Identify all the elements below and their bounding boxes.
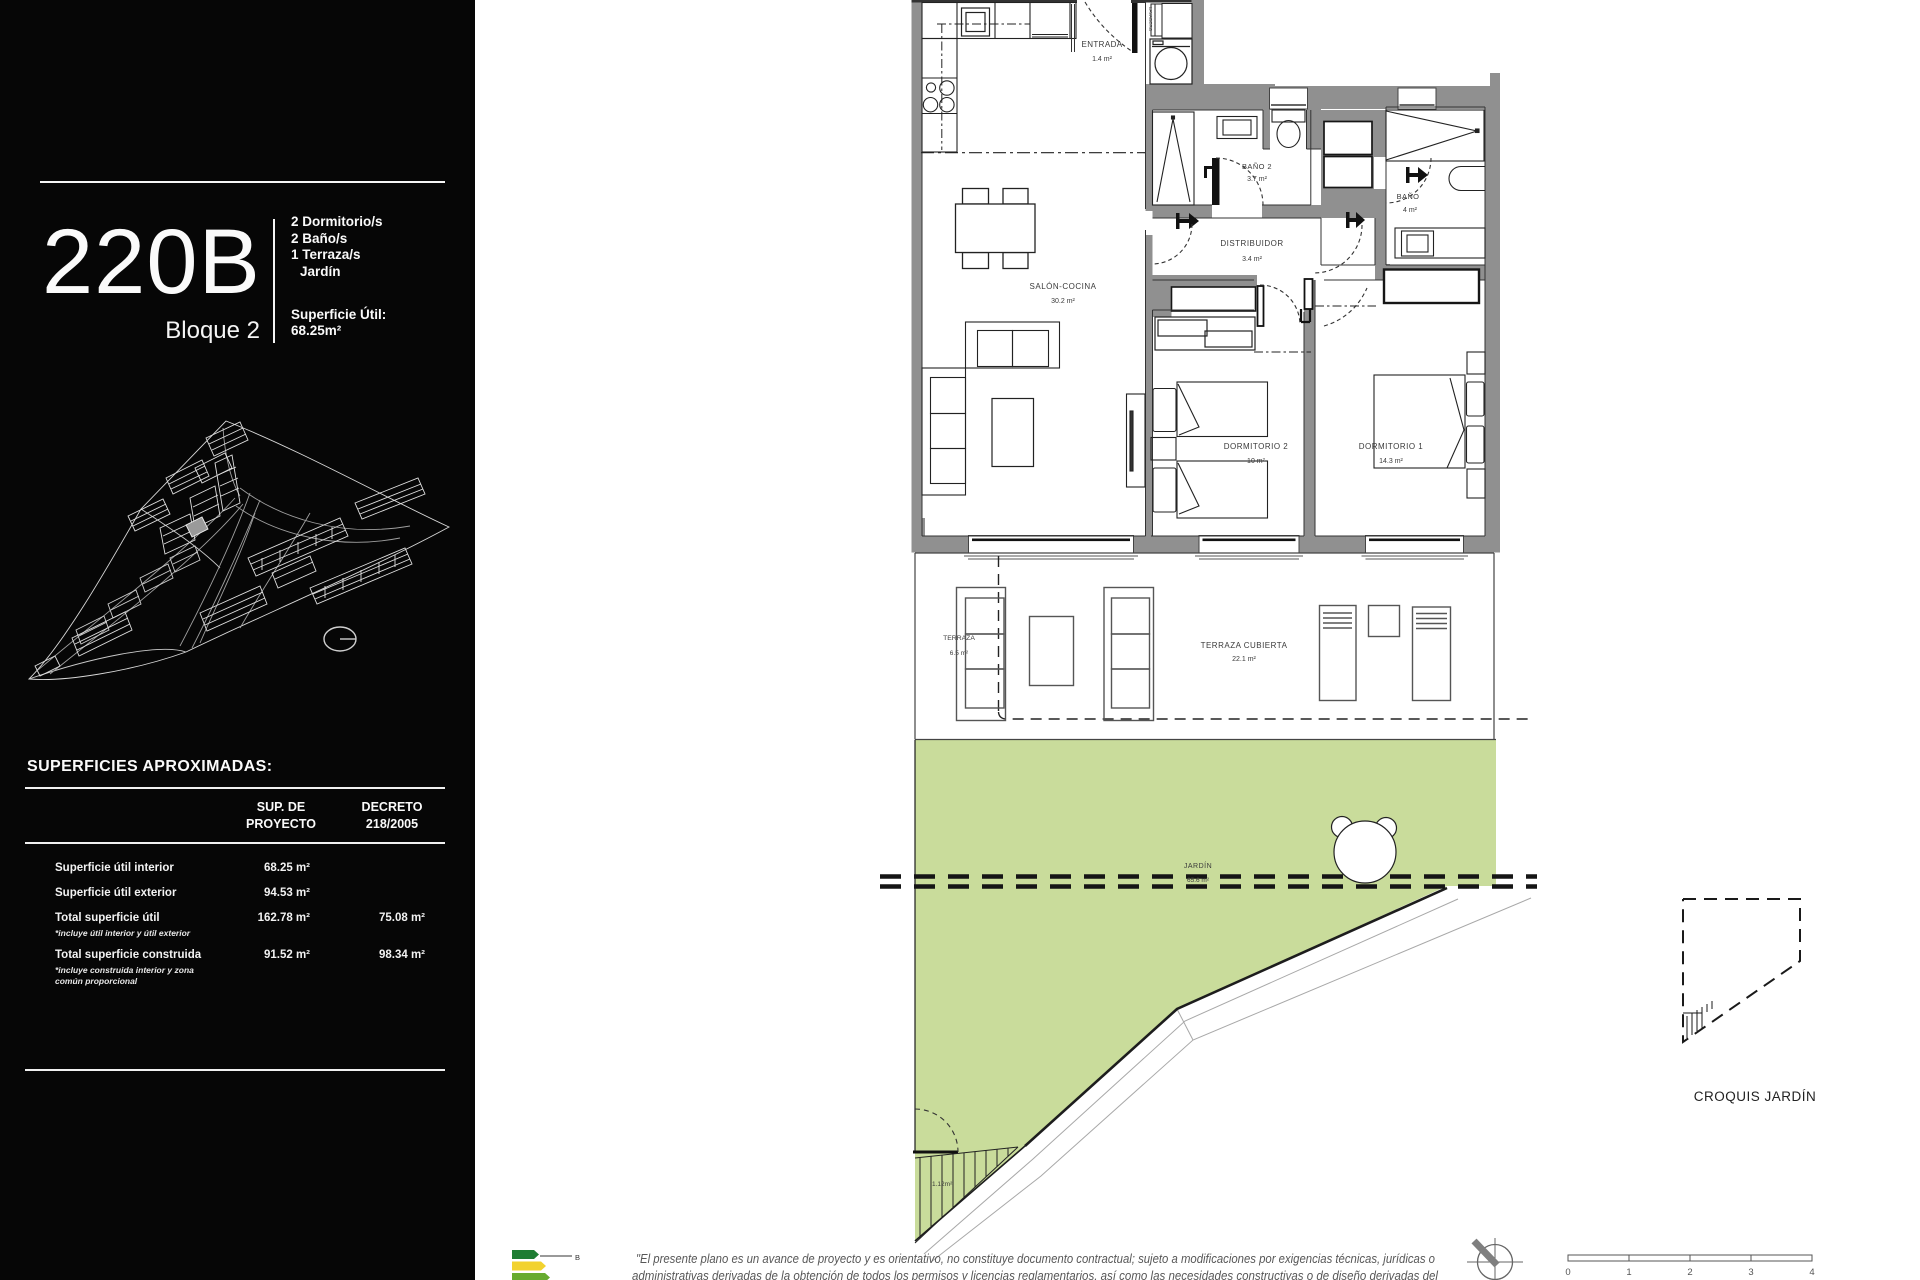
svg-text:LAVADERO: LAVADERO: [1148, 7, 1153, 32]
svg-text:14.3 m²: 14.3 m²: [1379, 458, 1403, 465]
svg-text:65.6 m²: 65.6 m²: [1187, 877, 1210, 884]
svg-text:1.4 m²: 1.4 m²: [1092, 56, 1113, 63]
svg-text:3.4 m²: 3.4 m²: [1242, 256, 1263, 263]
svg-text:administrativas derivadas de l: administrativas derivadas de la obtenció…: [632, 1269, 1439, 1280]
svg-text:BAÑO 2: BAÑO 2: [1242, 162, 1272, 171]
svg-text:B: B: [575, 1253, 580, 1262]
svg-text:ENTRADA: ENTRADA: [1081, 40, 1122, 49]
svg-text:CROQUIS JARDÍN: CROQUIS JARDÍN: [1694, 1089, 1817, 1104]
svg-text:DORMITORIO 2: DORMITORIO 2: [1224, 442, 1289, 451]
svg-text:0: 0: [1565, 1267, 1570, 1278]
svg-text:DORMITORIO 1: DORMITORIO 1: [1359, 442, 1424, 451]
svg-text:"El presente plano es un avanc: "El presente plano es un avance de proye…: [636, 1252, 1435, 1266]
svg-text:TERRAZA CUBIERTA: TERRAZA CUBIERTA: [1201, 641, 1288, 650]
svg-text:2: 2: [1687, 1267, 1692, 1278]
svg-text:4 m²: 4 m²: [1403, 207, 1418, 214]
svg-text:BAÑO: BAÑO: [1397, 192, 1420, 201]
svg-text:4: 4: [1809, 1267, 1814, 1278]
svg-text:TERRAZA: TERRAZA: [943, 635, 975, 642]
svg-text:1.12m²: 1.12m²: [932, 1181, 953, 1188]
svg-text:3.7 m²: 3.7 m²: [1247, 176, 1268, 183]
svg-text:10 m²: 10 m²: [1247, 458, 1266, 465]
svg-text:DISTRIBUIDOR: DISTRIBUIDOR: [1220, 239, 1283, 248]
svg-text:SALÓN-COCINA: SALÓN-COCINA: [1030, 282, 1097, 291]
svg-text:22.1 m²: 22.1 m²: [1232, 656, 1256, 663]
svg-text:3: 3: [1748, 1267, 1753, 1278]
svg-text:JARDÍN: JARDÍN: [1184, 861, 1212, 870]
svg-text:30.2 m²: 30.2 m²: [1051, 298, 1075, 305]
svg-text:1: 1: [1626, 1267, 1631, 1278]
